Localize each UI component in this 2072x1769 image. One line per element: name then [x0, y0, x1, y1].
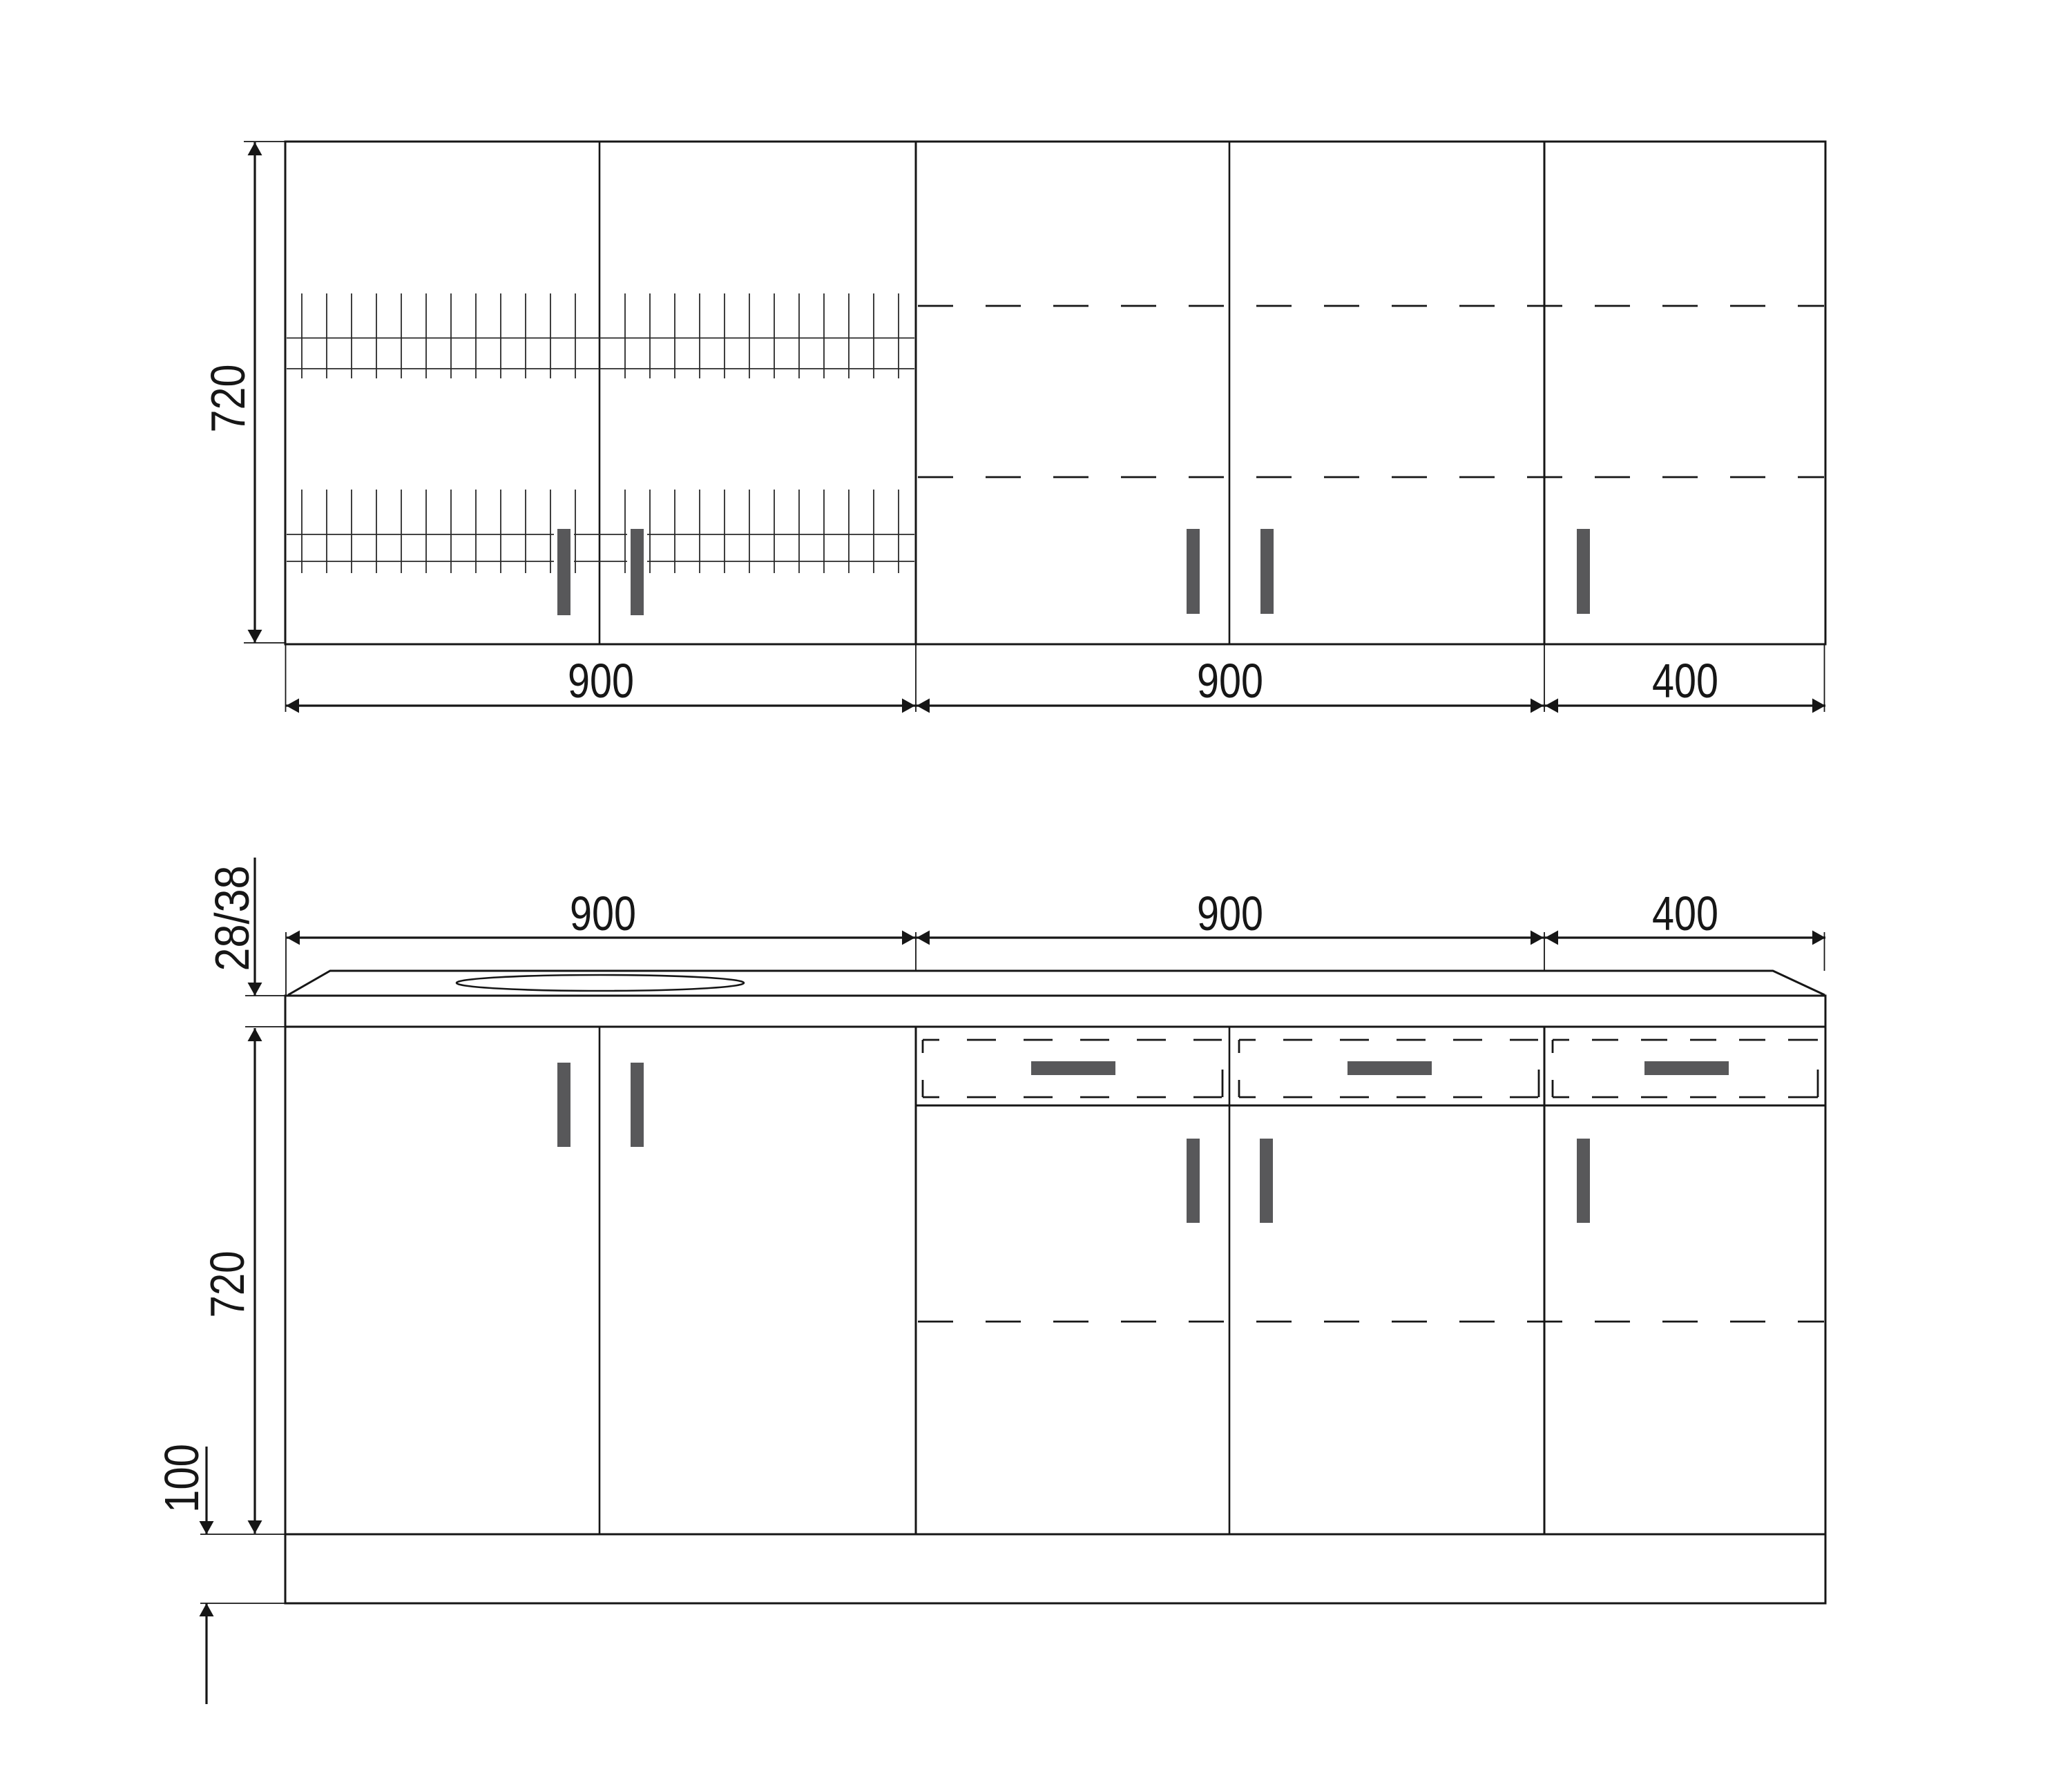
svg-text:900: 900: [568, 654, 634, 708]
svg-text:720: 720: [200, 1251, 254, 1318]
svg-text:28/38: 28/38: [205, 866, 259, 971]
svg-text:100: 100: [155, 1444, 209, 1513]
svg-text:900: 900: [1197, 887, 1263, 940]
svg-text:400: 400: [1652, 654, 1718, 708]
svg-text:720: 720: [201, 365, 255, 433]
svg-text:900: 900: [1197, 654, 1263, 708]
svg-text:400: 400: [1652, 887, 1718, 940]
svg-text:900: 900: [570, 887, 636, 940]
